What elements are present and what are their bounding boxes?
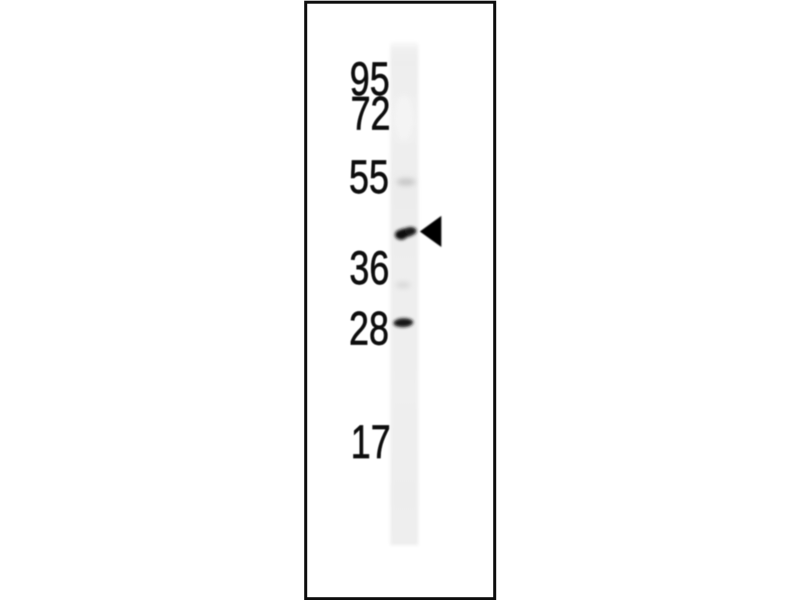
svg-text:55: 55	[349, 150, 389, 203]
svg-text:17: 17	[351, 415, 391, 468]
svg-text:28: 28	[349, 302, 389, 355]
svg-text:36: 36	[349, 241, 389, 294]
svg-text:72: 72	[351, 86, 391, 139]
